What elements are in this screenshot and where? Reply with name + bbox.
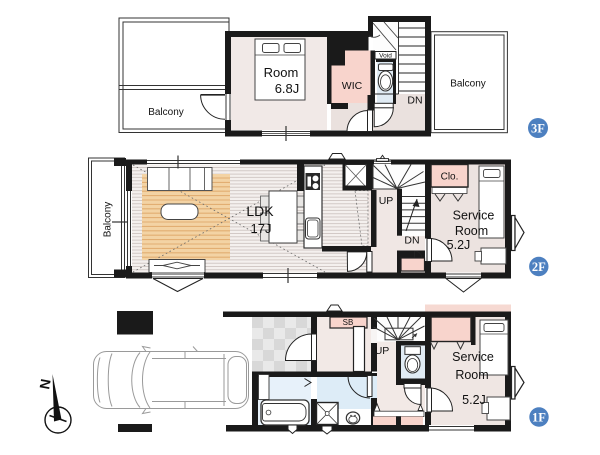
svg-text:Clo.: Clo.	[441, 172, 459, 183]
svg-text:DN: DN	[407, 95, 422, 107]
svg-text:3F: 3F	[531, 122, 545, 136]
svg-text:Room: Room	[264, 65, 299, 80]
svg-text:Service: Service	[452, 350, 494, 364]
svg-text:Service: Service	[453, 209, 495, 223]
svg-text:Balcony: Balcony	[148, 107, 184, 118]
svg-text:SB: SB	[343, 318, 354, 327]
svg-text:UP: UP	[375, 345, 390, 357]
svg-text:5.2J: 5.2J	[447, 238, 471, 252]
svg-text:Room: Room	[455, 368, 488, 382]
svg-text:LDK: LDK	[246, 203, 274, 219]
svg-text:2F: 2F	[532, 260, 546, 274]
svg-text:WIC: WIC	[342, 80, 363, 92]
svg-text:Void: Void	[379, 53, 392, 60]
svg-text:17J: 17J	[251, 221, 272, 236]
svg-text:Room: Room	[455, 224, 488, 238]
svg-text:6.8J: 6.8J	[275, 81, 300, 96]
svg-text:5.2J: 5.2J	[462, 393, 486, 407]
svg-text:UP: UP	[379, 195, 394, 207]
svg-text:Balcony: Balcony	[103, 202, 114, 238]
svg-text:DN: DN	[404, 235, 419, 247]
svg-text:1F: 1F	[532, 411, 546, 425]
svg-text:Balcony: Balcony	[450, 79, 486, 90]
